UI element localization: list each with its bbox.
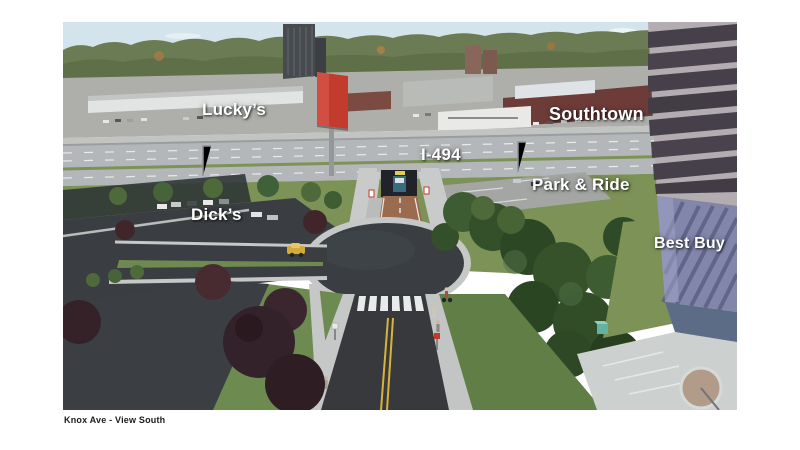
- label-dicks: Dick’s: [191, 206, 242, 223]
- apartment-block: [483, 50, 497, 74]
- label-southtown: Southtown: [549, 105, 644, 123]
- scene-rendering: [63, 22, 737, 410]
- tunnel-sign: [395, 171, 405, 175]
- label-best-buy: Best Buy: [654, 236, 725, 252]
- bus: [393, 176, 406, 192]
- cloud: [165, 33, 201, 39]
- facade-ribbed-lower: [657, 196, 737, 312]
- autumn-tree: [547, 42, 555, 50]
- slide-caption: Knox Ave - View South: [64, 415, 165, 425]
- apartment-block: [465, 46, 481, 74]
- label-park-and-ride: Park & Ride: [532, 176, 630, 193]
- slide-canvas: Lucky’s Southtown I-494 Park & Ride Dick…: [0, 0, 800, 450]
- autumn-tree: [154, 51, 164, 61]
- parked-car: [513, 179, 521, 183]
- rendering-frame: Lucky’s Southtown I-494 Park & Ride Dick…: [63, 22, 737, 410]
- autumn-tree: [377, 46, 385, 54]
- label-i494: I-494: [421, 146, 461, 163]
- label-luckys: Lucky’s: [202, 101, 266, 118]
